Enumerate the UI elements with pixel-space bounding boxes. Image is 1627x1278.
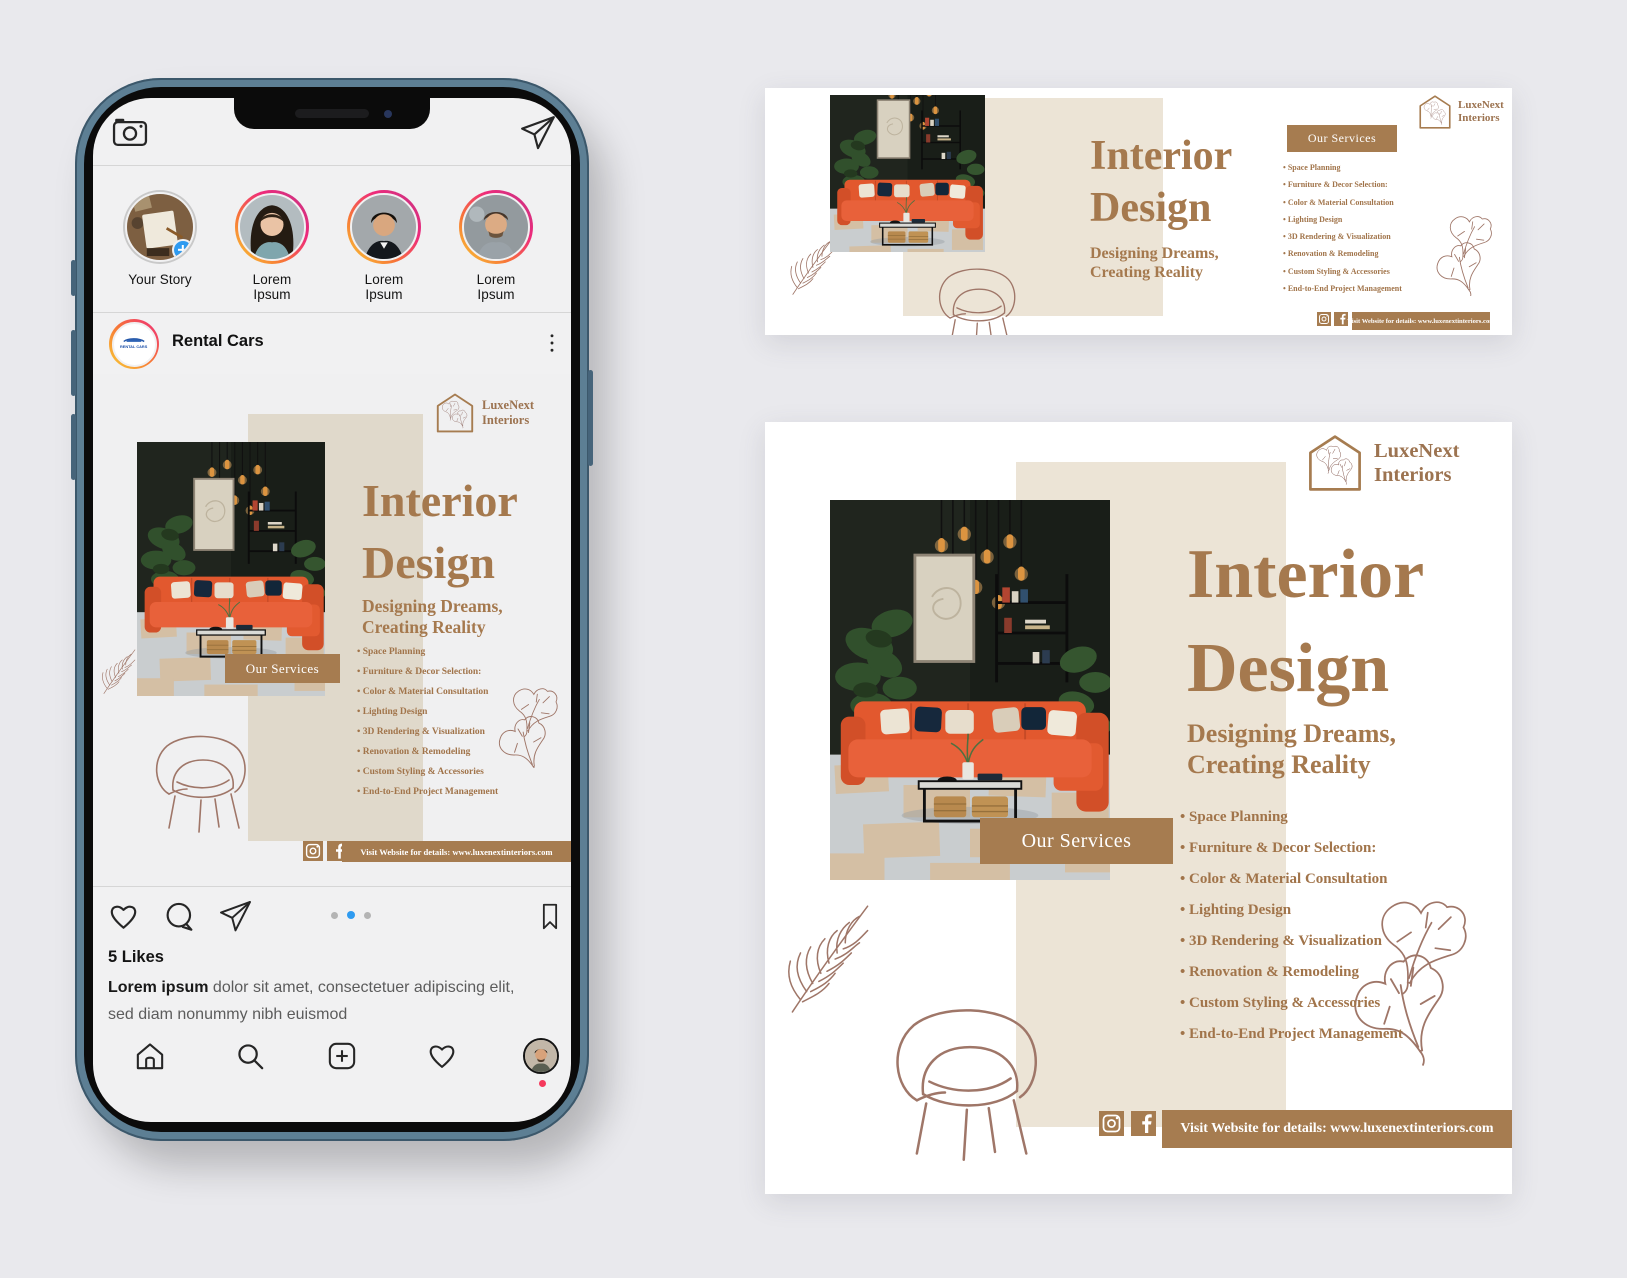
post-username[interactable]: Rental Cars	[172, 332, 264, 351]
service-item: Renovation & Remodeling	[1283, 245, 1402, 262]
service-item: Furniture & Decor Selection:	[1283, 176, 1402, 193]
service-item: Custom Styling & Accessories	[1283, 263, 1402, 280]
power-button	[588, 370, 593, 466]
service-item: Furniture & Decor Selection:	[357, 662, 498, 682]
carousel-dots	[331, 911, 371, 919]
brand-name-line1: LuxeNext	[1374, 439, 1459, 463]
phone-mockup: Your Story Lorem Ipsum	[75, 78, 589, 1141]
service-item: Space Planning	[357, 642, 498, 662]
story-your-story[interactable]: Your Story	[122, 190, 198, 287]
home-icon[interactable]	[134, 1040, 166, 1072]
share-icon[interactable]	[219, 900, 252, 933]
palm-leaf-lineart	[98, 626, 140, 714]
services-list: Space Planning Furniture & Decor Selecti…	[1283, 159, 1402, 297]
post-menu-icon[interactable]	[540, 330, 564, 356]
facebook-icon	[1131, 1111, 1156, 1136]
your-story-avatar	[125, 192, 195, 262]
story-label: Lorem Ipsum	[234, 272, 310, 302]
service-item: End-to-End Project Management	[1180, 1019, 1403, 1050]
activity-icon[interactable]	[426, 1040, 458, 1072]
canvas: Your Story Lorem Ipsum	[0, 0, 1627, 1278]
brand-name-line2: Interiors	[1458, 112, 1504, 125]
carousel-dot	[364, 912, 371, 919]
social-icons	[1317, 312, 1348, 326]
ad-creative-square: LuxeNext Interiors Interior Design Desig…	[765, 422, 1512, 1194]
post-media-carousel[interactable]: LuxeNext Interiors Interior Design Desig…	[93, 374, 571, 886]
ad-title-line1: Interior	[1187, 528, 1424, 622]
banner-ad-card: LuxeNext Interiors Interior Design Desig…	[765, 88, 1512, 335]
ad-title: Interior Design	[1187, 528, 1424, 716]
brand-name: LuxeNext Interiors	[482, 398, 534, 428]
logo-house-icon	[434, 392, 476, 434]
service-item: 3D Rendering & Visualization	[1180, 926, 1403, 957]
service-item: Furniture & Decor Selection:	[1180, 833, 1403, 864]
search-icon[interactable]	[234, 1040, 266, 1072]
story-avatar	[350, 193, 418, 261]
chair-lineart	[928, 258, 1030, 335]
instagram-bottom-nav	[93, 1028, 571, 1122]
service-item: Lighting Design	[357, 702, 498, 722]
ad-subtitle-line2: Creating Reality	[1187, 749, 1396, 780]
service-item: 3D Rendering & Visualization	[357, 722, 498, 742]
square-ad-card: LuxeNext Interiors Interior Design Desig…	[765, 422, 1512, 1194]
service-item: Color & Material Consultation	[357, 682, 498, 702]
service-item: Renovation & Remodeling	[1180, 957, 1403, 988]
service-item: Color & Material Consultation	[1283, 194, 1402, 211]
facebook-icon	[1334, 312, 1348, 326]
interior-photo	[830, 95, 985, 252]
monstera-leaf-lineart	[493, 672, 561, 768]
phone-notch	[234, 98, 430, 129]
ad-subtitle: Designing Dreams, Creating Reality	[1187, 718, 1396, 780]
services-list: Space Planning Furniture & Decor Selecti…	[357, 642, 498, 802]
brand-name-line1: LuxeNext	[1458, 99, 1504, 112]
website-bar: Visit Website for details: www.luxenexti…	[1352, 312, 1490, 330]
logo-house-icon	[1305, 433, 1365, 493]
likes-count[interactable]: 5 Likes	[108, 948, 164, 967]
brand-name-line2: Interiors	[1374, 463, 1459, 487]
service-item: Custom Styling & Accessories	[1180, 988, 1403, 1019]
instagram-icon	[1317, 312, 1331, 326]
story-label: Lorem Ipsum	[346, 272, 422, 302]
service-item: Space Planning	[1283, 159, 1402, 176]
ad-title-line1: Interior	[1090, 130, 1232, 182]
speaker-slot	[295, 109, 369, 118]
website-bar: Visit Website for details: www.luxenexti…	[1162, 1110, 1512, 1148]
brand-name: LuxeNext Interiors	[1458, 99, 1504, 125]
post-header: RENTAL CARS Rental Cars	[93, 314, 571, 372]
ad-title: Interior Design	[1090, 130, 1232, 234]
social-icons	[303, 841, 347, 861]
ad-subtitle: Designing Dreams, Creating Reality	[1090, 244, 1219, 282]
service-item: Lighting Design	[1180, 895, 1403, 926]
post-caption: Lorem ipsum dolor sit amet, consectetuer…	[108, 974, 516, 1028]
ad-title-line2: Design	[1090, 182, 1232, 234]
story-user-1[interactable]: Lorem Ipsum	[234, 190, 310, 302]
service-item: Space Planning	[1180, 802, 1403, 833]
ad-title-line2: Design	[362, 532, 518, 594]
our-services-button: Our Services	[1287, 125, 1397, 152]
story-label: Lorem Ipsum	[458, 272, 534, 302]
logo-house-icon	[1417, 94, 1453, 130]
new-post-icon[interactable]	[326, 1040, 358, 1072]
story-avatar	[462, 193, 530, 261]
camera-icon[interactable]	[110, 113, 150, 151]
carousel-dot	[331, 912, 338, 919]
volume-down-button	[71, 414, 76, 480]
notification-dot	[539, 1080, 546, 1087]
social-icons	[1099, 1111, 1156, 1136]
stories-row: Your Story Lorem Ipsum	[93, 166, 571, 313]
caption-username[interactable]: Lorem ipsum	[108, 979, 208, 996]
ad-title-line1: Interior	[362, 470, 518, 532]
website-bar: Visit Website for details: www.luxenexti…	[342, 841, 571, 862]
story-user-2[interactable]: Lorem Ipsum	[346, 190, 422, 302]
bookmark-icon[interactable]	[536, 900, 564, 933]
service-item: Color & Material Consultation	[1180, 864, 1403, 895]
like-icon[interactable]	[107, 900, 140, 933]
carousel-dot-active	[347, 911, 355, 919]
service-item: Lighting Design	[1283, 211, 1402, 228]
our-services-button: Our Services	[980, 818, 1173, 864]
ad-subtitle-line2: Creating Reality	[1090, 263, 1219, 282]
volume-up-button	[71, 330, 76, 396]
front-camera-dot	[384, 110, 392, 118]
brand-name-line2: Interiors	[482, 413, 534, 428]
ad-subtitle: Designing Dreams, Creating Reality	[362, 596, 503, 638]
ad-subtitle-line2: Creating Reality	[362, 617, 503, 638]
ad-subtitle-line1: Designing Dreams,	[1187, 718, 1396, 749]
story-user-3[interactable]: Lorem Ipsum	[458, 190, 534, 302]
monstera-leaf-lineart	[1431, 196, 1495, 296]
chair-lineart	[870, 994, 1070, 1166]
post-action-bar	[93, 886, 571, 946]
service-item: 3D Rendering & Visualization	[1283, 228, 1402, 245]
phone-screen: Your Story Lorem Ipsum	[93, 98, 571, 1122]
ad-title: Interior Design	[362, 470, 518, 594]
instagram-icon	[303, 841, 323, 861]
our-services-button: Our Services	[225, 654, 340, 683]
ad-creative-banner: LuxeNext Interiors Interior Design Desig…	[765, 88, 1512, 335]
chair-lineart	[143, 722, 263, 840]
brand-logo: LuxeNext Interiors	[1305, 433, 1459, 493]
instagram-icon	[1099, 1111, 1124, 1136]
ad-subtitle-line1: Designing Dreams,	[1090, 244, 1219, 263]
direct-message-icon[interactable]	[520, 115, 556, 151]
brand-name: LuxeNext Interiors	[1374, 439, 1459, 487]
service-item: End-to-End Project Management	[1283, 280, 1402, 297]
ad-title-line2: Design	[1187, 622, 1424, 716]
profile-avatar[interactable]	[523, 1038, 559, 1074]
service-item: Custom Styling & Accessories	[357, 762, 498, 782]
add-story-plus-icon[interactable]	[172, 239, 194, 261]
avatar-brand-text: RENTAL CARS	[120, 344, 148, 349]
brand-name-line1: LuxeNext	[482, 398, 534, 413]
ad-subtitle-line1: Designing Dreams,	[362, 596, 503, 617]
services-list: Space Planning Furniture & Decor Selecti…	[1180, 802, 1403, 1050]
story-avatar	[238, 193, 306, 261]
brand-logo: LuxeNext Interiors	[434, 392, 534, 434]
ad-creative-phone: LuxeNext Interiors Interior Design Desig…	[93, 374, 571, 886]
post-author-avatar[interactable]: RENTAL CARS	[109, 319, 159, 369]
service-item: Renovation & Remodeling	[357, 742, 498, 762]
service-item: End-to-End Project Management	[357, 782, 498, 802]
brand-logo: LuxeNext Interiors	[1417, 94, 1504, 130]
story-label: Your Story	[122, 272, 198, 287]
comment-icon[interactable]	[163, 900, 196, 933]
mute-switch	[71, 260, 76, 296]
